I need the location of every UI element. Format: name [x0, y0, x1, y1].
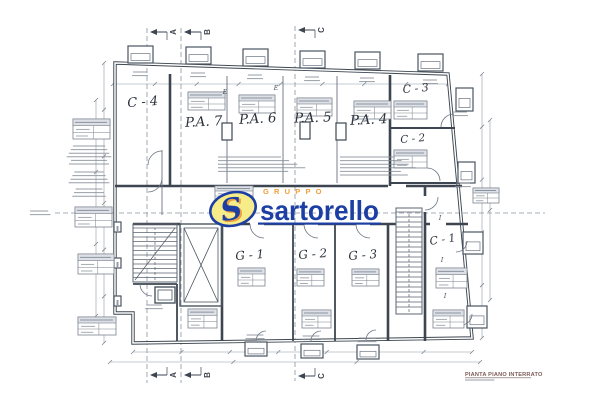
logo-underline — [258, 223, 381, 225]
logo-name: sartorello — [260, 195, 379, 226]
drawing-sheet: C - 4 P.A. 7 P.A. 6 P.A. 5 P.A. 4 C - 3 … — [0, 0, 600, 417]
room-label-c1: C - 1 — [429, 231, 457, 248]
section-marker-top-a: A — [169, 29, 178, 35]
section-marker-top-b: B — [203, 29, 212, 35]
room-label-c3: C - 3 — [402, 81, 429, 96]
room-label-c2: C - 2 — [400, 132, 426, 146]
room-label-g1: G - 1 — [235, 247, 265, 263]
section-marker-top-c: C — [317, 27, 326, 33]
section-marker-bottom-b: B — [203, 372, 212, 378]
room-label-pa7: P.A. 7 — [184, 113, 224, 131]
footer-title-block: PIANTA PIANO INTERRATO — [465, 372, 543, 378]
section-marker-bottom-a: A — [169, 372, 178, 378]
room-label-pa5: P.A. 5 — [293, 109, 332, 126]
drawing-title: PIANTA PIANO INTERRATO — [465, 372, 543, 378]
column-mark: I — [440, 257, 444, 264]
elevator-shaft — [155, 224, 222, 306]
bay-mark: E — [222, 89, 228, 96]
room-label-c4: C - 4 — [127, 94, 159, 111]
stair-right — [396, 208, 422, 314]
column-mark: I — [443, 293, 447, 300]
bay-mark: E — [273, 85, 279, 92]
room-label-pa4: P.A. 4 — [349, 111, 388, 129]
logo-sartorello: S S GRUPPO sartorello — [207, 187, 381, 231]
floor-plan: C - 4 P.A. 7 P.A. 6 P.A. 5 P.A. 4 C - 3 … — [0, 0, 600, 417]
room-label-g2: G - 2 — [298, 246, 328, 262]
section-marker-bottom-c: C — [317, 373, 326, 379]
room-label-g3: G - 3 — [348, 247, 378, 263]
stair-left — [133, 224, 177, 282]
column-mark: I — [438, 215, 442, 222]
room-label-pa6: P.A. 6 — [238, 110, 278, 128]
